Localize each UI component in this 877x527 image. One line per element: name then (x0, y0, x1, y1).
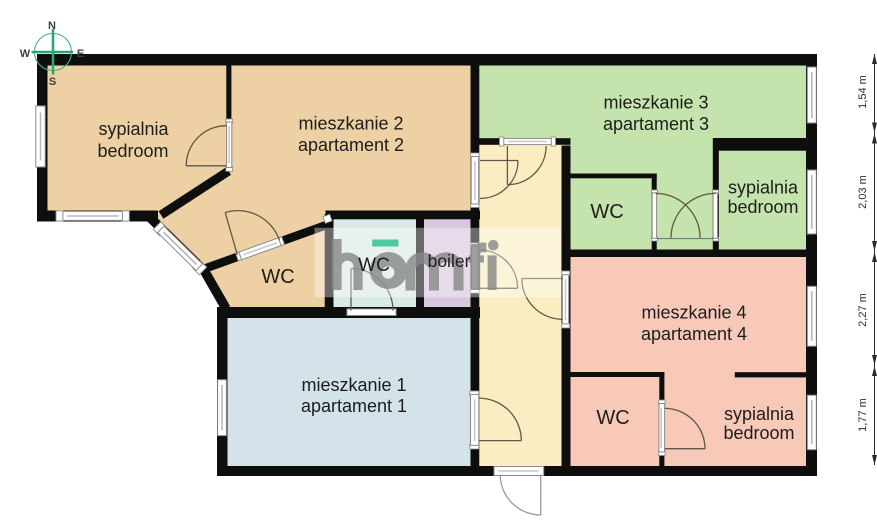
svg-text:bedroom: bedroom (97, 141, 168, 161)
svg-text:bedroom: bedroom (727, 197, 798, 217)
svg-text:WC: WC (261, 266, 294, 288)
svg-text:mieszkanie 4: mieszkanie 4 (641, 303, 746, 323)
svg-text:1,54 m: 1,54 m (857, 75, 869, 109)
svg-text:2,27 m: 2,27 m (857, 293, 869, 327)
svg-text:apartament 3: apartament 3 (603, 114, 709, 134)
svg-text:boiler: boiler (428, 251, 471, 271)
svg-text:WC: WC (590, 201, 623, 223)
svg-text:1,77 m: 1,77 m (857, 398, 869, 432)
svg-text:E: E (77, 48, 84, 60)
svg-text:apartament 1: apartament 1 (301, 396, 407, 416)
svg-text:apartament 4: apartament 4 (641, 324, 747, 344)
svg-text:mieszkanie 3: mieszkanie 3 (603, 93, 708, 113)
svg-text:WC: WC (596, 407, 629, 429)
svg-text:mieszkanie 2: mieszkanie 2 (298, 114, 403, 134)
svg-text:W: W (20, 48, 31, 60)
svg-text:mieszkanie 1: mieszkanie 1 (301, 375, 406, 395)
svg-text:sypialnia: sypialnia (724, 404, 795, 424)
svg-text:WC: WC (358, 255, 390, 276)
svg-text:S: S (49, 76, 56, 88)
svg-text:2,03 m: 2,03 m (857, 175, 869, 209)
svg-text:bedroom: bedroom (723, 423, 794, 443)
svg-text:N: N (48, 20, 56, 32)
svg-text:sypialnia: sypialnia (98, 119, 169, 139)
svg-text:apartament 2: apartament 2 (298, 135, 404, 155)
svg-text:sypialnia: sypialnia (728, 178, 799, 198)
